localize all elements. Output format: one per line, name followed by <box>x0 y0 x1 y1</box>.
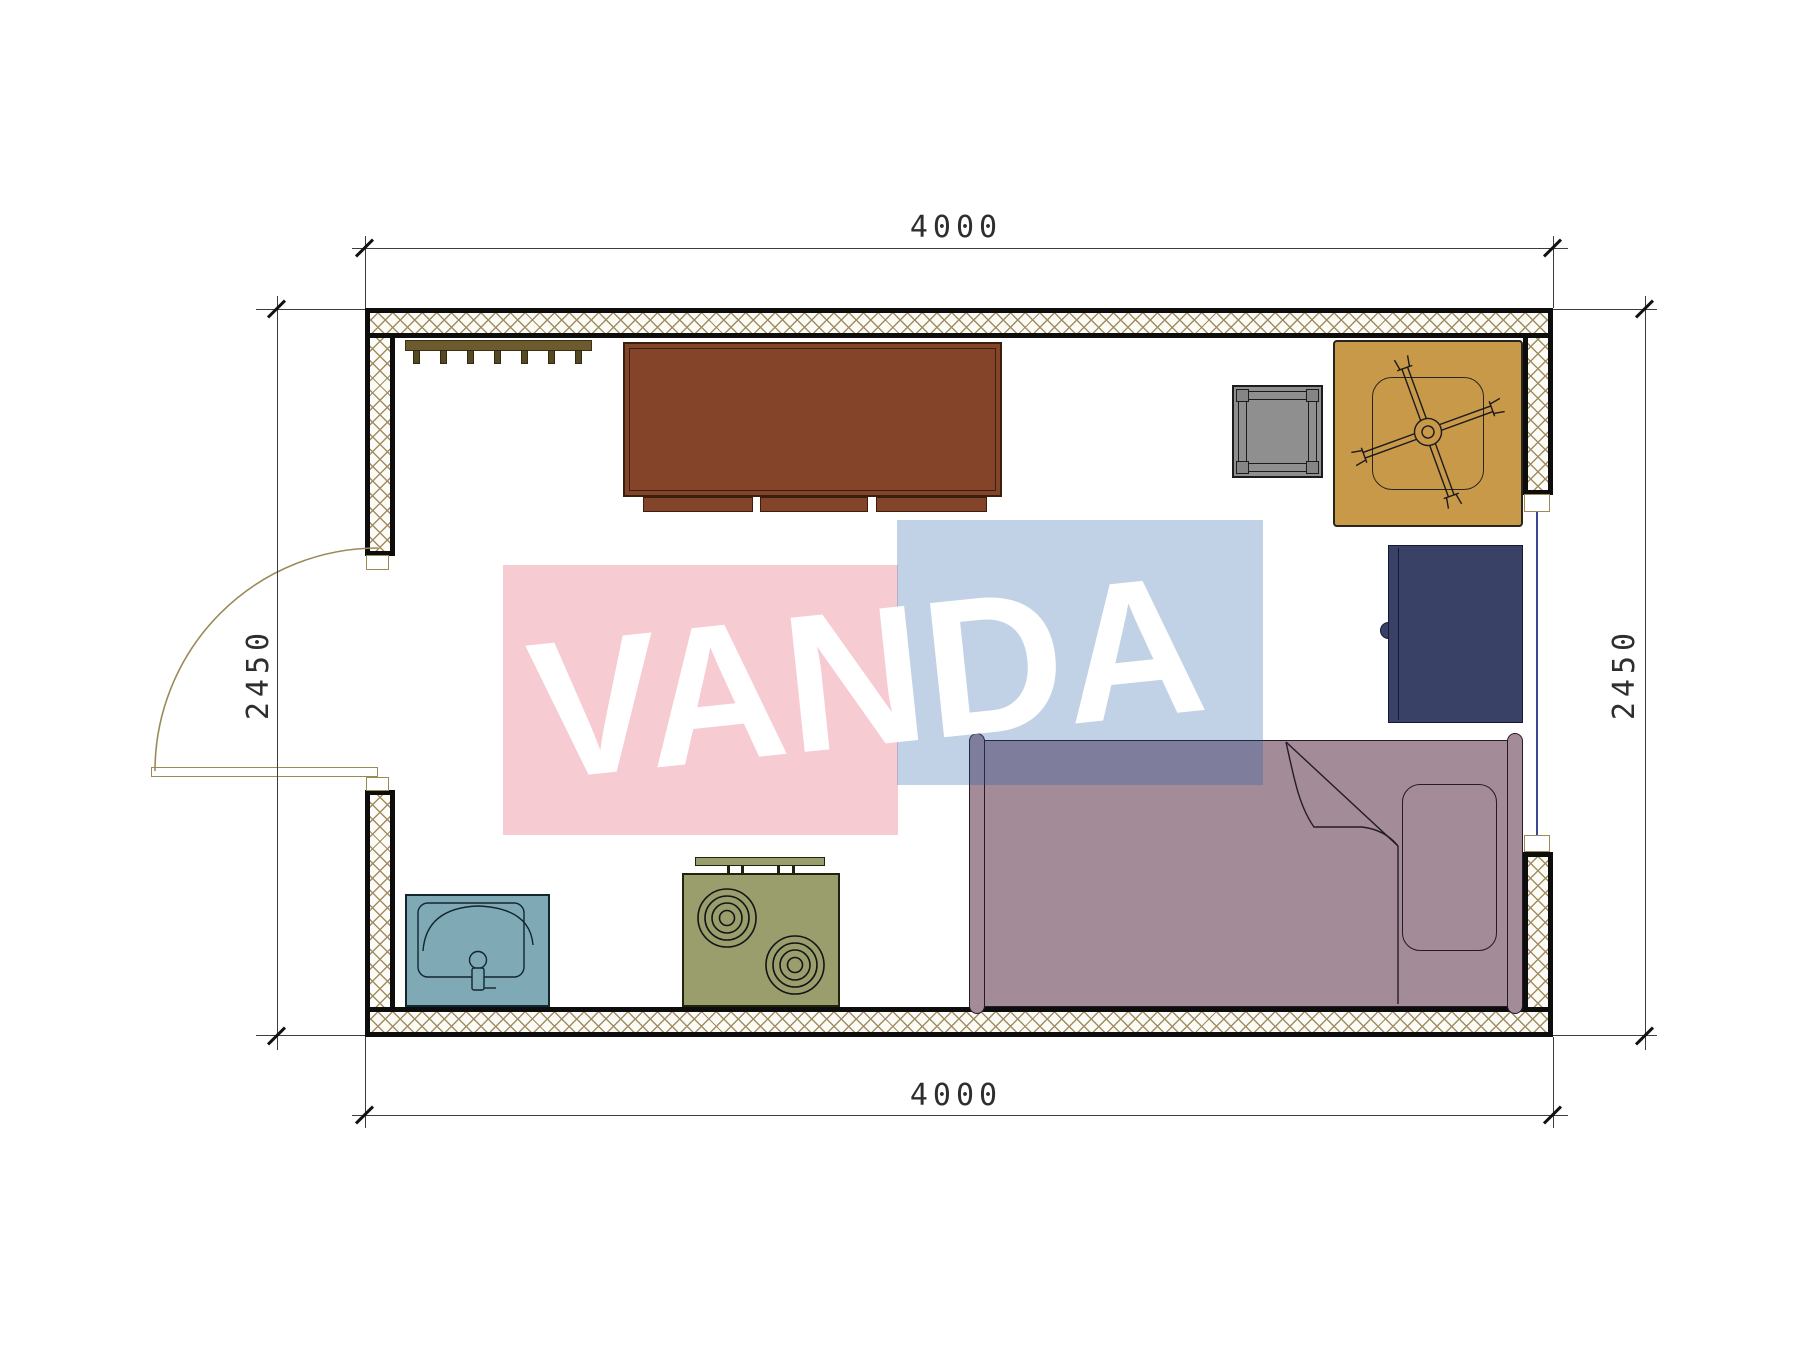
dim-label-bottom: 4000 <box>856 1078 1056 1114</box>
sink-basin-icon <box>405 894 550 1007</box>
desk <box>623 342 1002 497</box>
fridge-door-line <box>1398 548 1399 720</box>
coat-rack-hook <box>575 350 582 364</box>
stool-leg <box>1306 389 1319 402</box>
dim-line-left <box>277 296 278 1050</box>
desk-foot <box>876 497 987 512</box>
window-jamb-top <box>1524 494 1550 512</box>
stool-rail-inner <box>1246 399 1309 464</box>
wall-left-lower <box>365 790 395 1007</box>
stove-back-bar <box>695 857 825 866</box>
fan-icon <box>1333 340 1523 527</box>
ext-line <box>256 1035 365 1036</box>
wall-bottom <box>365 1007 1553 1037</box>
window-jamb-bottom <box>1524 835 1550 852</box>
stool-leg <box>1236 461 1249 474</box>
refrigerator <box>1388 545 1523 723</box>
dim-line-bottom <box>352 1115 1568 1116</box>
coat-rack-hook <box>440 350 447 364</box>
desk-foot <box>643 497 753 512</box>
floor-plan-canvas: 4000 4000 2450 2450 VANDA <box>0 0 1800 1350</box>
stove-burners-icon <box>682 873 840 1007</box>
wall-right-upper <box>1523 338 1553 495</box>
wall-right-lower <box>1523 852 1553 1007</box>
dim-line-top <box>352 248 1568 249</box>
coat-rack-hook <box>494 350 501 364</box>
wall-top <box>365 308 1553 338</box>
dim-label-right: 2450 <box>1607 574 1643 774</box>
dim-label-left: 2450 <box>241 574 277 774</box>
stool-leg <box>1236 389 1249 402</box>
dim-label-top: 4000 <box>856 210 1056 246</box>
wall-left-upper <box>365 338 395 556</box>
window-glass-line <box>1536 512 1538 835</box>
coat-rack-hook <box>467 350 474 364</box>
stool-leg <box>1306 461 1319 474</box>
coat-rack-hook <box>521 350 528 364</box>
coat-rack-hook <box>413 350 420 364</box>
coat-rack-hook <box>548 350 555 364</box>
desk-foot <box>760 497 868 512</box>
dim-line-right <box>1645 296 1646 1050</box>
